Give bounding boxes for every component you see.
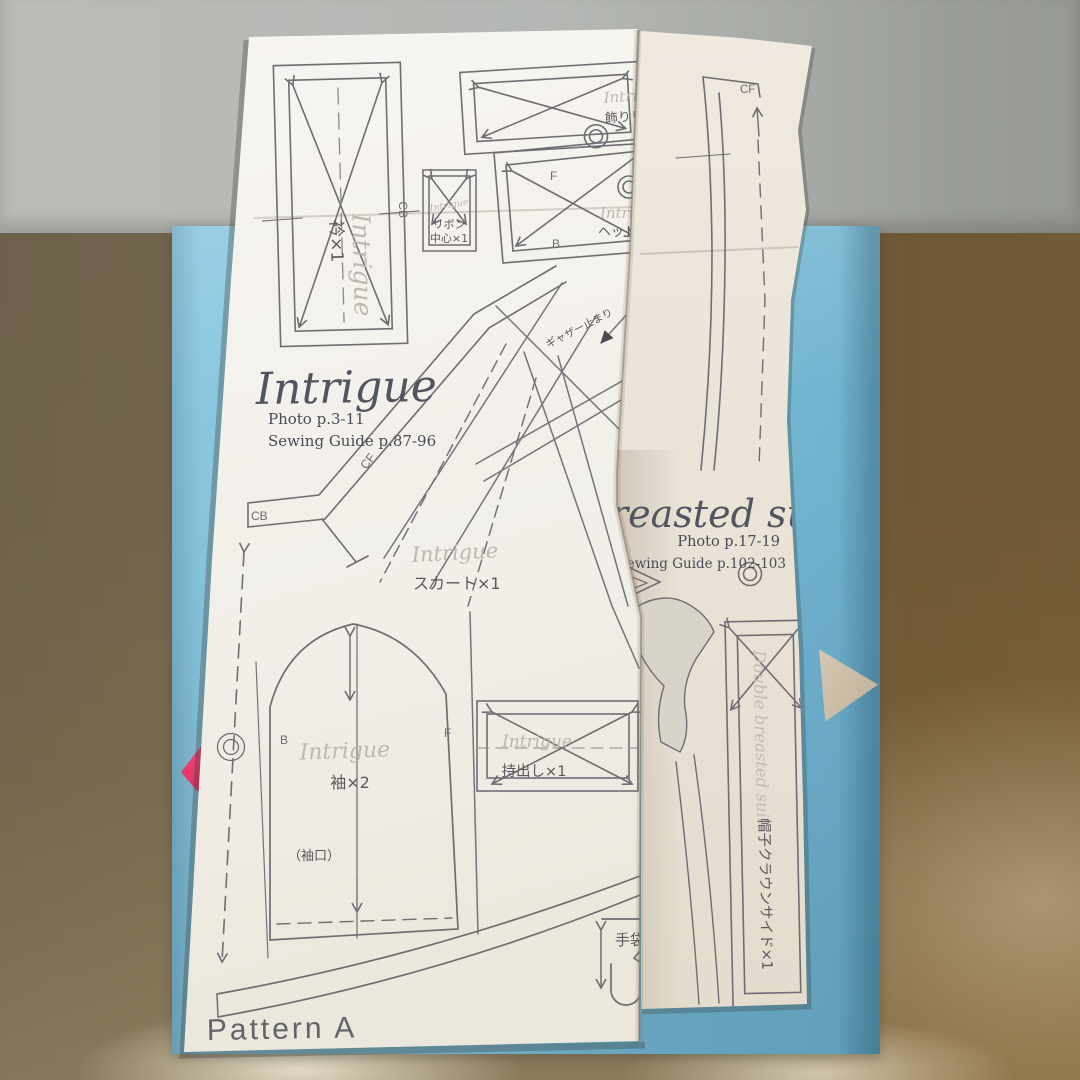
piece-label: 持出し×1 [502, 763, 567, 780]
back-mark: B [280, 733, 288, 747]
collection-title: reasted suit [610, 492, 839, 536]
sewing-ref: Sewing Guide p.87-96 [268, 432, 436, 450]
piece-label: リボン [433, 218, 466, 231]
sheet-footer: Pattern A [207, 1011, 358, 1047]
photo-of-sewing-pattern-sheets: Intrigue 衿×1 CB Intrigue リボン 中心×1 [0, 0, 1080, 1080]
back-mark: B [552, 237, 560, 251]
cf-mark: CF [740, 84, 755, 96]
piece-label: スカート×1 [413, 574, 501, 593]
title-block-right: reasted suit Photo p.17-19 Sewing Guide … [610, 492, 839, 572]
brand-logo: Intrigue [298, 737, 390, 765]
pattern-sheets-drawing: Intrigue 衿×1 CB Intrigue リボン 中心×1 [0, 0, 1080, 1080]
cb-mark: CB [251, 509, 268, 523]
brand-logo: Intrigue [410, 539, 499, 568]
cuff-note: （袖口） [288, 849, 340, 864]
piece-label: 衿×1 [325, 220, 346, 263]
brand-logo: Intrigue [501, 732, 572, 752]
brand-logo: Double breasted suit [750, 649, 773, 825]
photo-ref: Photo p.17-19 [677, 534, 780, 550]
title-block-left: Intrigue Photo p.3-11 Sewing Guide p.87-… [254, 361, 437, 450]
front-mark: F [550, 169, 557, 183]
pattern-sheet-left [184, 29, 641, 1052]
cb-mark: CB [396, 201, 410, 218]
piece-label: 帽子クラウンサイド×1 [755, 818, 775, 970]
sewing-ref: Sewing Guide p.102-103 [618, 556, 787, 572]
photo-ref: Photo p.3-11 [268, 410, 365, 428]
front-mark: F [444, 726, 451, 740]
brand-logo: Intrigue [346, 212, 378, 317]
piece-label: 袖×2 [330, 773, 370, 792]
piece-label: 中心×1 [430, 232, 468, 245]
collection-title: Intrigue [254, 361, 437, 415]
